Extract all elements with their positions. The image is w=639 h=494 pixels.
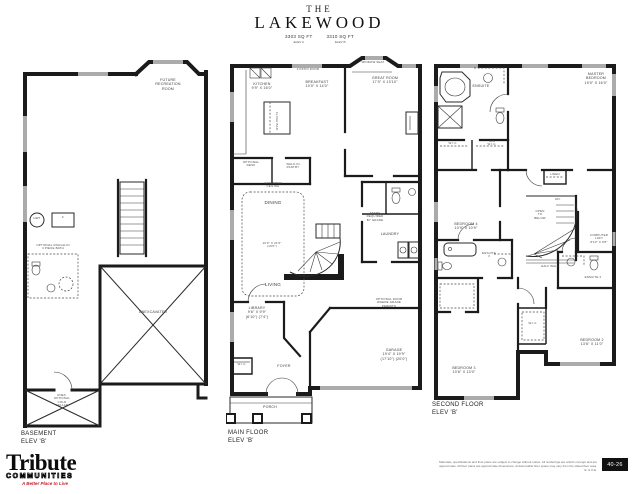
variant-b-sqft: 3310 SQ FT bbox=[327, 34, 355, 39]
disclaimer-line2: All floor plans are approximate dimensio… bbox=[457, 464, 597, 472]
basement-floor-label: BASEMENT ELEV 'B' bbox=[21, 431, 56, 447]
kitchen-fixtures bbox=[232, 68, 290, 154]
dining-dims-label: 10'0" X 21'6" (19'0") bbox=[250, 242, 294, 249]
basement-floor-elev: ELEV 'B' bbox=[21, 439, 56, 447]
basement-stairs bbox=[118, 180, 146, 256]
sqft-variants: 3303 SQ FT ELEV A 3310 SQ FT ELEV B bbox=[0, 34, 639, 44]
room-label-bedroom4: BEDROOM 4 10'9" X 10'9" bbox=[440, 222, 492, 231]
variant-a-elev: ELEV A bbox=[285, 40, 313, 44]
room-label-ensuite: ENSUITE bbox=[466, 84, 496, 88]
fireplace-icon bbox=[406, 112, 418, 134]
optional-desk-label: OPTIONAL DESK bbox=[236, 161, 266, 168]
window-seat-label: WINDOW SEAT bbox=[350, 61, 396, 64]
wic-label-his: HIS W.I.C. bbox=[480, 140, 504, 147]
variant-a-sqft: 3303 SQ FT bbox=[285, 34, 313, 39]
room-label-kitchen: KITCHEN 9'9" X 16'0" bbox=[240, 82, 284, 91]
variant-b: 3310 SQ FT ELEV B bbox=[327, 34, 355, 44]
open-to-below-label: OPEN TO BELOW bbox=[528, 210, 552, 220]
room-label-laundry: LAUNDRY bbox=[372, 232, 408, 236]
floor-plan-sheet: THE LAKEWOOD 3303 SQ FT ELEV A 3310 SQ F… bbox=[0, 0, 639, 494]
patio-door-label: 2 PATIO DOOR bbox=[284, 68, 332, 71]
coffered-ceiling-label: COFFERED CEILING bbox=[258, 182, 288, 189]
second-stairs bbox=[526, 196, 577, 263]
wic-label-2: W.I.C. bbox=[520, 322, 546, 325]
room-label-foyer: FOYER bbox=[268, 364, 300, 368]
room-label-ensuite3: ENSUITE 3 bbox=[478, 252, 500, 259]
room-label-master: MASTER BEDROOM 19'0" X 16'0" bbox=[570, 72, 622, 85]
steps-note-label: STEPS REQUIRED BY GRADE bbox=[362, 212, 388, 222]
main-floor-label: MAIN FLOOR ELEV 'B' bbox=[228, 430, 268, 446]
laundry-machines bbox=[398, 242, 419, 258]
ensuite3-fixtures bbox=[438, 243, 512, 270]
room-label-future-recreation: FUTURE RECREATION ROOM bbox=[138, 78, 198, 91]
room-label-ensuite2: ENSUITE 2 bbox=[578, 276, 608, 279]
builder-logo: Tribute COMMUNITIES A Better Place to Li… bbox=[6, 451, 116, 486]
ensuite2-fixtures bbox=[562, 256, 598, 270]
page-title: LAKEWOOD bbox=[0, 13, 639, 33]
room-label-unexcavated: UNEXCAVATED bbox=[113, 310, 193, 314]
main-windows bbox=[232, 58, 416, 388]
page-number: 40-26 bbox=[607, 462, 623, 468]
wic-label-1: W.I.C. bbox=[440, 142, 466, 145]
second-outer-walls bbox=[436, 66, 614, 398]
basement-plan: FUTURE RECREATION ROOM HWT F OPTIONAL RO… bbox=[20, 58, 212, 450]
master-ensuite-fixtures bbox=[438, 68, 504, 128]
room-label-great-room: GREAT ROOM 17'0" X 13'10" bbox=[356, 76, 414, 85]
second-floor-plan: ENSUITE MASTER BEDROOM 19'0" X 16'0" W.I… bbox=[430, 56, 620, 448]
second-windows bbox=[436, 66, 614, 398]
second-floor-elev: ELEV 'B' bbox=[432, 410, 484, 418]
furnace-label: F bbox=[56, 216, 70, 219]
second-floor-label: SECOND FLOOR ELEV 'B' bbox=[432, 402, 484, 418]
main-floor-name: MAIN FLOOR bbox=[228, 430, 268, 438]
builder-logo-sub: COMMUNITIES bbox=[6, 473, 116, 480]
basement-floor-name: BASEMENT bbox=[21, 431, 56, 439]
second-interior-walls bbox=[436, 66, 614, 352]
wic-label-main: W.I.C. bbox=[232, 363, 252, 366]
room-label-library: LIBRARY 9'6" X 9'9" (6'10") (7'4") bbox=[234, 306, 280, 319]
title-block: THE LAKEWOOD 3303 SQ FT ELEV A 3310 SQ F… bbox=[0, 4, 639, 44]
variant-b-elev: ELEV B bbox=[327, 40, 355, 44]
main-interior-walls bbox=[232, 66, 420, 388]
main-outer-walls bbox=[232, 58, 420, 394]
island-label: FLUSH BAR bbox=[275, 108, 278, 134]
builder-logo-wordmark: Tribute bbox=[6, 451, 116, 474]
linen-label: LINEN bbox=[544, 173, 566, 176]
room-label-computer-loft: COMPUTER LOFT 8'10" X 9'8" bbox=[584, 234, 614, 244]
dn-label: DN. bbox=[550, 198, 566, 201]
room-label-garage: GARAGE 19'4" X 19'9" (17'10") (20'0") bbox=[368, 348, 420, 361]
optional-bath-label: OPTIONAL ROUGH-IN 3 PIECE BATH bbox=[28, 244, 78, 251]
room-label-breakfast: BREAKFAST 10'0" X 14'0" bbox=[292, 80, 342, 89]
page-number-badge: 40-26 bbox=[602, 458, 628, 471]
variant-a: 3303 SQ FT ELEV A bbox=[285, 34, 313, 44]
optional-door-note: OPTIONAL DOOR WHERE GRADE PERMITS bbox=[368, 298, 410, 308]
main-floor-plan: KITCHEN 9'9" X 16'0" BREAKFAST 10'0" X 1… bbox=[226, 56, 428, 448]
main-floor-elev: ELEV 'B' bbox=[228, 438, 268, 446]
builder-logo-tagline: A Better Place to Live bbox=[6, 481, 84, 486]
powder-room-fixtures bbox=[392, 188, 416, 204]
entry-doors bbox=[234, 284, 298, 394]
disclaimer-text: Materials, specifications and floor plan… bbox=[437, 460, 597, 472]
main-stairs bbox=[290, 224, 340, 276]
cold-cellar-label: UNEX. OPTIONAL COLD CELLAR bbox=[33, 394, 91, 408]
room-label-porch: PORCH bbox=[254, 405, 286, 409]
room-label-bedroom3: BEDROOM 3 10'6" X 13'0" bbox=[438, 366, 490, 375]
half-wall-label: HALF WALL bbox=[534, 265, 566, 268]
room-label-bedroom2: BEDROOM 2 13'6" X 11'0" bbox=[566, 338, 618, 347]
second-floor-name: SECOND FLOOR bbox=[432, 402, 484, 410]
porch-structure bbox=[226, 397, 312, 423]
room-label-living: LIVING bbox=[253, 282, 293, 288]
pantry-label: WALK-IN PANTRY bbox=[278, 163, 308, 170]
room-label-dining: DINING bbox=[253, 200, 293, 206]
hwt-label: HWT bbox=[30, 217, 44, 220]
optional-bath-roughin bbox=[28, 254, 78, 298]
